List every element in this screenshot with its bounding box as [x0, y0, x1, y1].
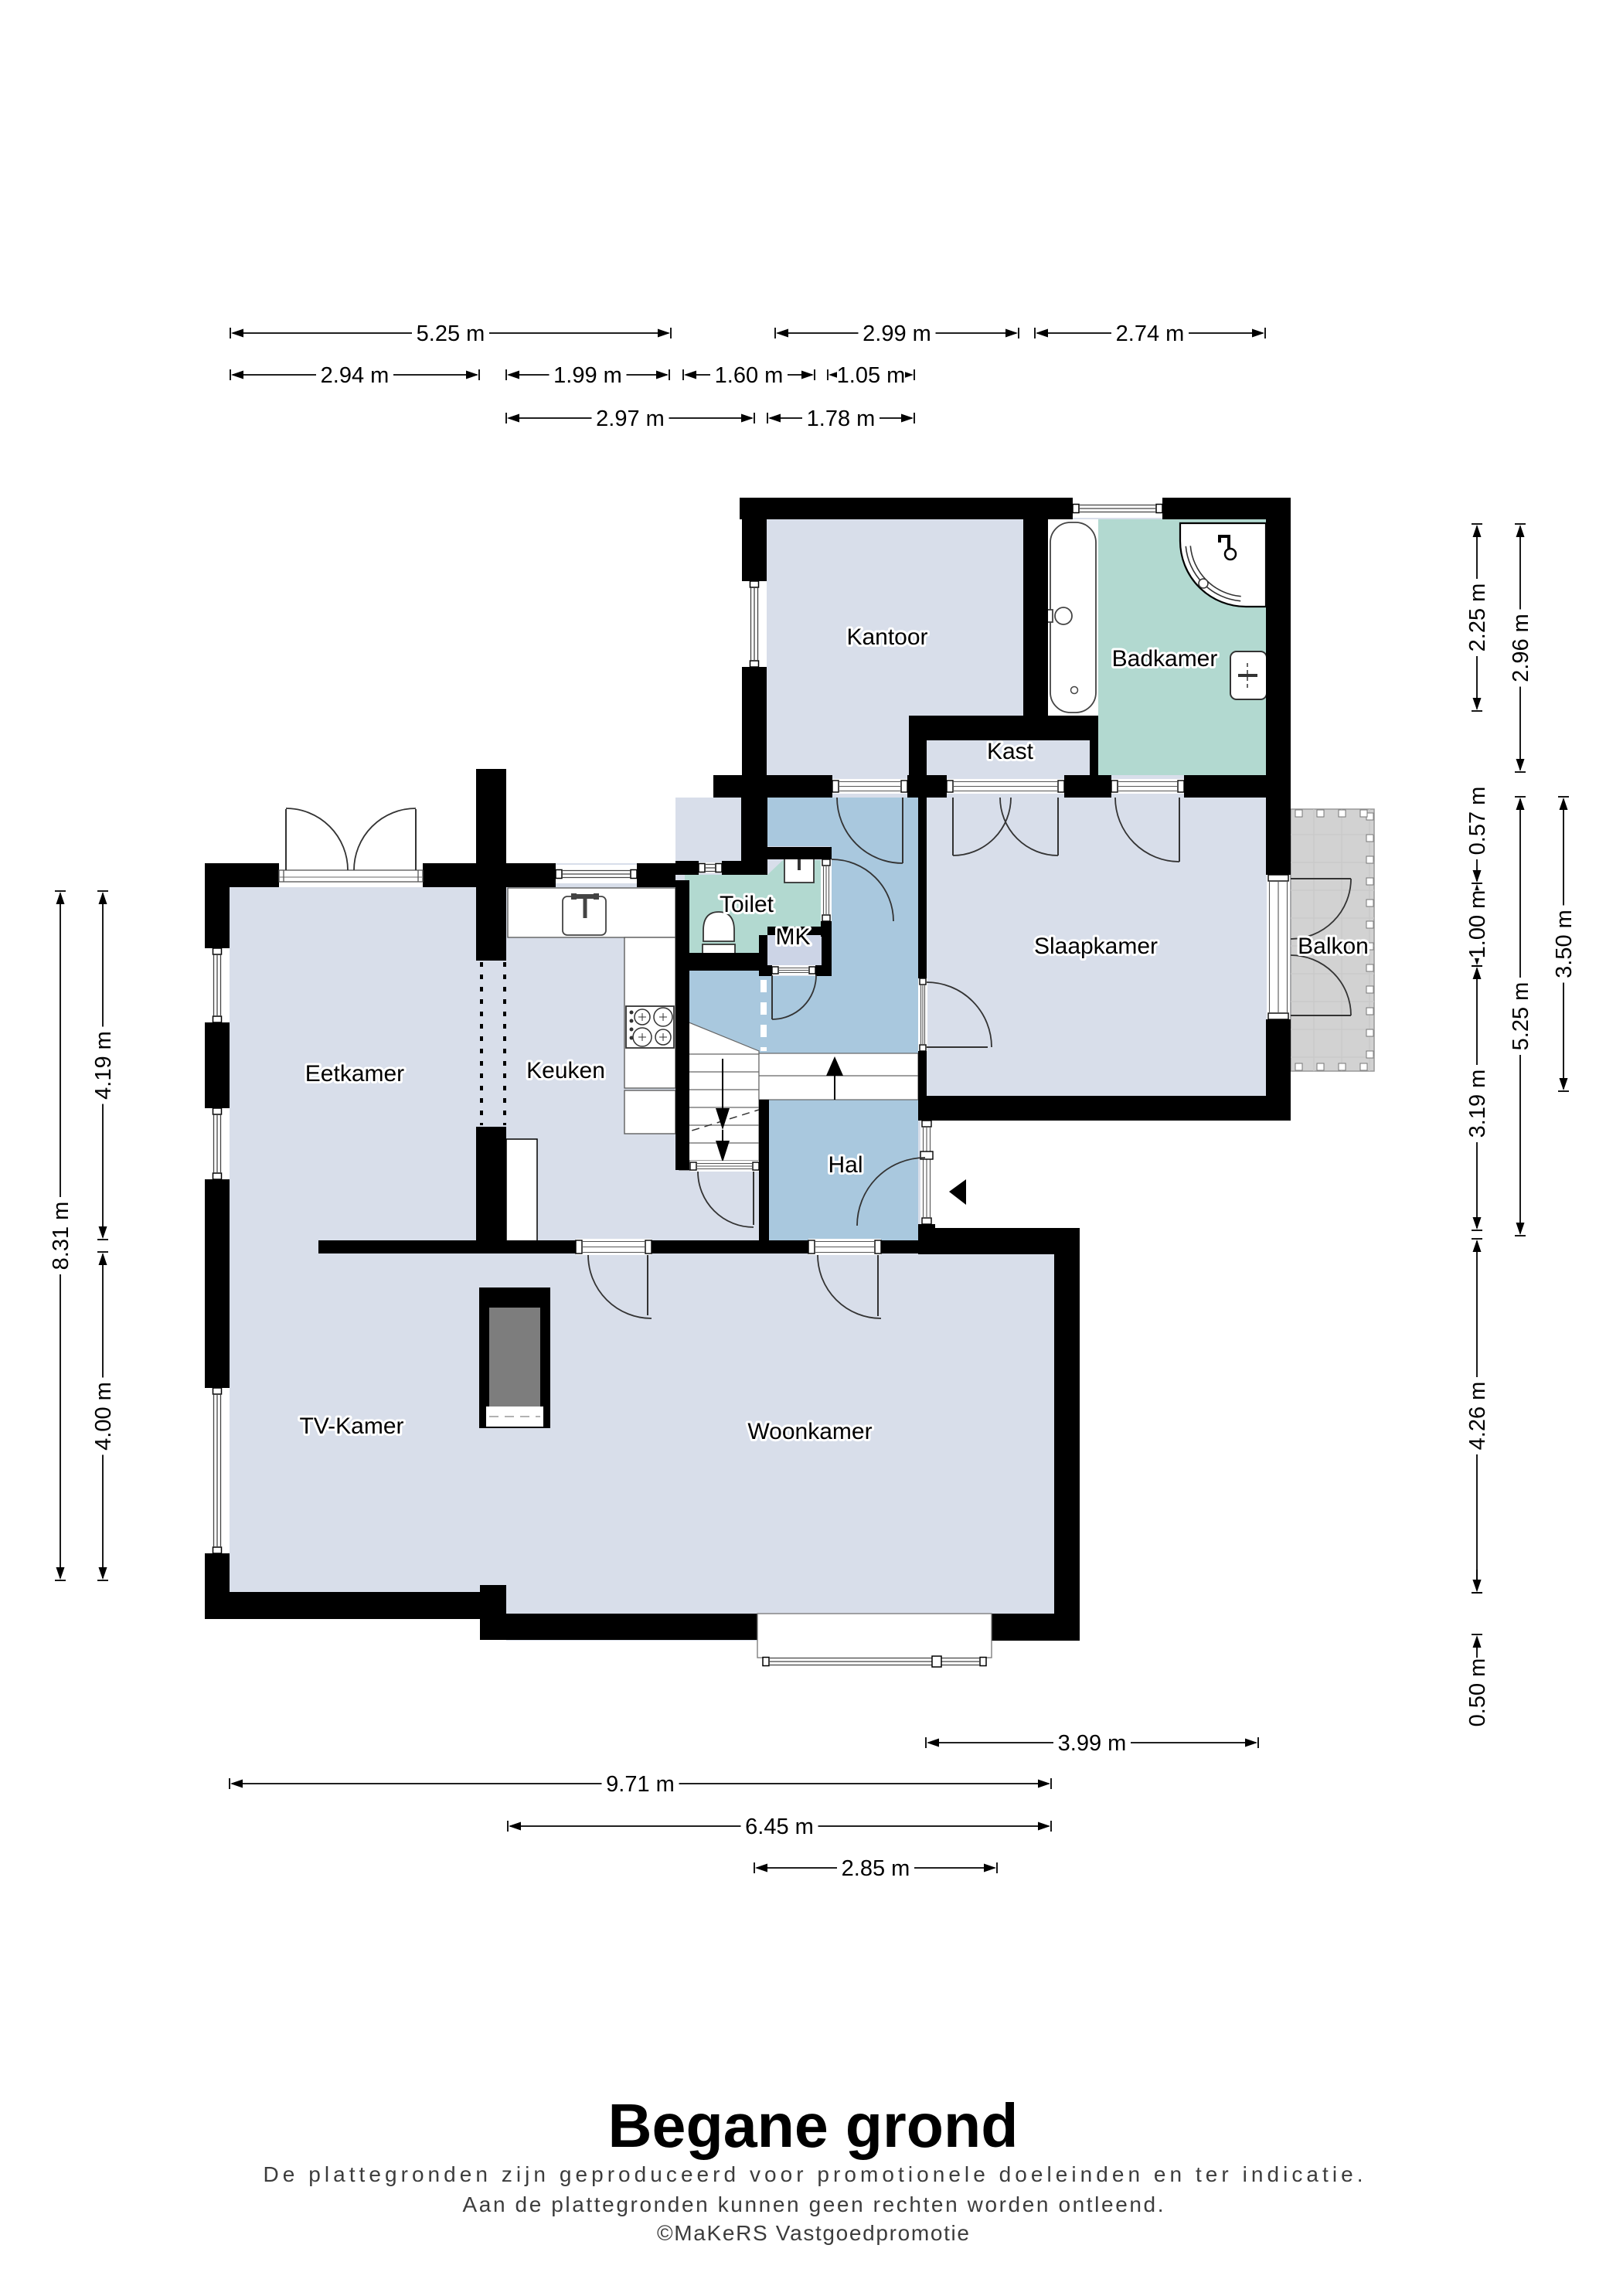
svg-text:4.26 m: 4.26 m	[1465, 1382, 1490, 1451]
svg-text:4.19 m: 4.19 m	[91, 1031, 116, 1100]
svg-text:0.57 m: 0.57 m	[1465, 787, 1490, 855]
svg-text:8.31 m: 8.31 m	[49, 1202, 73, 1270]
svg-text:TV-Kamer: TV-Kamer	[299, 1413, 403, 1439]
svg-text:Begane grond: Begane grond	[608, 2091, 1019, 2160]
svg-text:2.97 m: 2.97 m	[596, 406, 665, 431]
svg-text:2.94 m: 2.94 m	[321, 363, 390, 388]
svg-text:0.50 m: 0.50 m	[1465, 1658, 1490, 1727]
svg-text:2.74 m: 2.74 m	[1116, 321, 1185, 346]
svg-text:Balkon: Balkon	[1298, 934, 1369, 959]
svg-text:Kast: Kast	[987, 739, 1034, 764]
svg-text:5.25 m: 5.25 m	[1509, 982, 1533, 1051]
svg-text:1.78 m: 1.78 m	[807, 406, 876, 431]
svg-text:Hal: Hal	[828, 1152, 863, 1178]
svg-text:Eetkamer: Eetkamer	[305, 1061, 404, 1087]
svg-text:2.85 m: 2.85 m	[842, 1856, 910, 1881]
svg-text:1.00 m: 1.00 m	[1465, 890, 1490, 959]
svg-text:Keuken: Keuken	[526, 1058, 605, 1083]
svg-text:Woonkamer: Woonkamer	[747, 1419, 872, 1444]
svg-text:1.05 m: 1.05 m	[837, 363, 906, 388]
svg-text:©MaKeRS Vastgoedpromotie: ©MaKeRS Vastgoedpromotie	[657, 2221, 969, 2245]
svg-text:De plattegronden zijn geproduc: De plattegronden zijn geproduceerd voor …	[264, 2162, 1363, 2186]
svg-text:4.00 m: 4.00 m	[91, 1382, 116, 1451]
svg-text:2.99 m: 2.99 m	[863, 321, 931, 346]
svg-text:Kantoor: Kantoor	[846, 624, 927, 650]
svg-text:Aan de plattegronden kunnen ge: Aan de plattegronden kunnen geen rechten…	[463, 2192, 1164, 2216]
svg-text:3.99 m: 3.99 m	[1058, 1731, 1127, 1756]
svg-text:6.45 m: 6.45 m	[745, 1815, 814, 1839]
svg-text:1.99 m: 1.99 m	[553, 363, 622, 388]
svg-text:MK: MK	[776, 924, 811, 950]
svg-text:Slaapkamer: Slaapkamer	[1034, 934, 1158, 959]
svg-text:1.60 m: 1.60 m	[715, 363, 784, 388]
svg-text:9.71 m: 9.71 m	[606, 1772, 675, 1797]
svg-text:Toilet: Toilet	[720, 892, 774, 917]
svg-text:3.50 m: 3.50 m	[1552, 910, 1577, 978]
svg-text:Badkamer: Badkamer	[1112, 646, 1218, 672]
svg-text:2.25 m: 2.25 m	[1465, 583, 1490, 652]
svg-text:5.25 m: 5.25 m	[417, 321, 485, 346]
svg-text:3.19 m: 3.19 m	[1465, 1070, 1490, 1138]
svg-text:2.96 m: 2.96 m	[1509, 614, 1533, 682]
